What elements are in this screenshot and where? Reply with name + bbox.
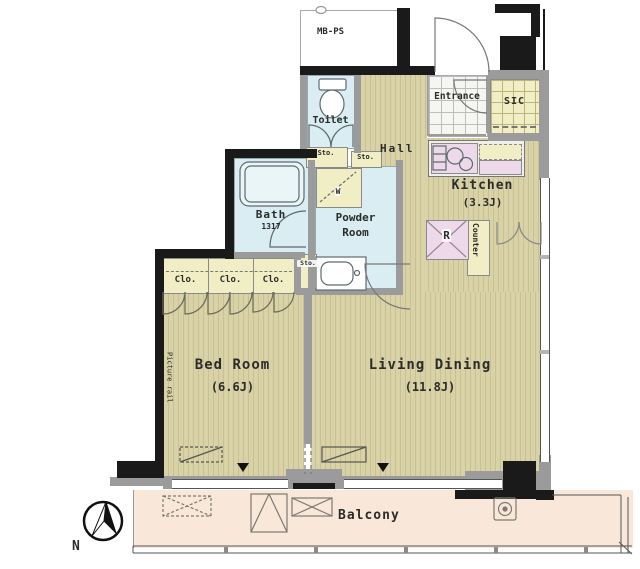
kitchen-sink-unit	[431, 143, 478, 174]
wall	[488, 133, 541, 141]
wall	[488, 70, 540, 79]
north-label: N	[72, 540, 80, 554]
step-gray	[110, 477, 163, 486]
wall	[354, 73, 361, 153]
bath-label: Bath	[234, 209, 308, 221]
wall-black	[531, 4, 540, 37]
north-compass	[84, 502, 122, 540]
sic-hanger-pipe	[493, 126, 536, 128]
storage-hall-label: Sto.	[351, 154, 380, 162]
balcony-label: Balcony	[338, 509, 400, 523]
bath-room	[234, 158, 310, 256]
window-right	[540, 178, 550, 462]
wall	[396, 160, 403, 292]
wall-black	[536, 490, 554, 500]
wall	[296, 288, 403, 295]
bedroom-label: Bed Room	[155, 358, 310, 373]
refrigerator-letter: R	[442, 229, 451, 242]
powder-room-label-1: Powder	[315, 212, 396, 224]
powder-room-label-2: Room	[315, 227, 396, 239]
living-dining-label: Living Dining	[325, 358, 535, 373]
kitchen-size-label: (3.3J)	[424, 197, 541, 209]
hall-entrance-edge	[427, 75, 428, 136]
picture-rail-label: Picture rail	[165, 352, 173, 447]
hall-label: Hall	[380, 143, 415, 155]
closet-1-label: Clo.	[163, 276, 208, 286]
mb-ps-label: MB-PS	[317, 28, 344, 38]
entrance-tile	[428, 75, 488, 137]
pillar-base-black	[293, 483, 335, 489]
floor-plan: MB-PS Toilet Sto. Sto. Sto. Hall Entranc…	[0, 0, 640, 569]
wall	[539, 70, 549, 180]
refrigerator-label: R	[426, 230, 467, 242]
wall-black	[397, 8, 410, 72]
closet-3-label: Clo.	[253, 276, 294, 286]
wall-black	[300, 66, 435, 75]
kitchen-label: Kitchen	[424, 179, 541, 193]
wall	[308, 160, 315, 292]
bedroom-size-label: (6.6J)	[155, 381, 310, 394]
toilet-room	[307, 75, 356, 149]
kitchen-counter-top	[479, 144, 522, 160]
wall-black	[155, 249, 234, 258]
wall	[225, 252, 305, 258]
wall-black	[225, 149, 317, 158]
storage-toilet-label: Sto.	[306, 150, 346, 158]
sic-label: SIC	[490, 96, 539, 107]
washer-label: W	[316, 188, 360, 197]
closet-dashed-line	[166, 271, 292, 272]
wall-black	[543, 9, 545, 70]
wall-black	[117, 461, 163, 478]
pillar-black	[500, 36, 536, 70]
living-dining-size-label: (11.8J)	[325, 381, 535, 394]
window-living	[344, 479, 502, 489]
wall-black	[503, 461, 536, 491]
toilet-label: Toilet	[307, 115, 354, 126]
wall-black	[225, 149, 234, 259]
wall	[300, 73, 307, 149]
washer-letter: W	[335, 187, 342, 196]
bath-size-label: 1317	[234, 223, 308, 232]
counter-label: Counter	[470, 223, 479, 273]
meter-box-pipe-space	[300, 10, 400, 70]
entrance-door-arc	[435, 18, 489, 72]
kitchen-counter-bottom	[479, 160, 522, 175]
window-bedroom	[172, 479, 288, 489]
entrance-label: Entrance	[426, 92, 488, 102]
pillar-between-windows	[286, 469, 342, 483]
storage-powder-label: Sto.	[297, 260, 319, 267]
entrance-step-line	[428, 134, 486, 136]
closet-2-label: Clo.	[208, 276, 253, 286]
